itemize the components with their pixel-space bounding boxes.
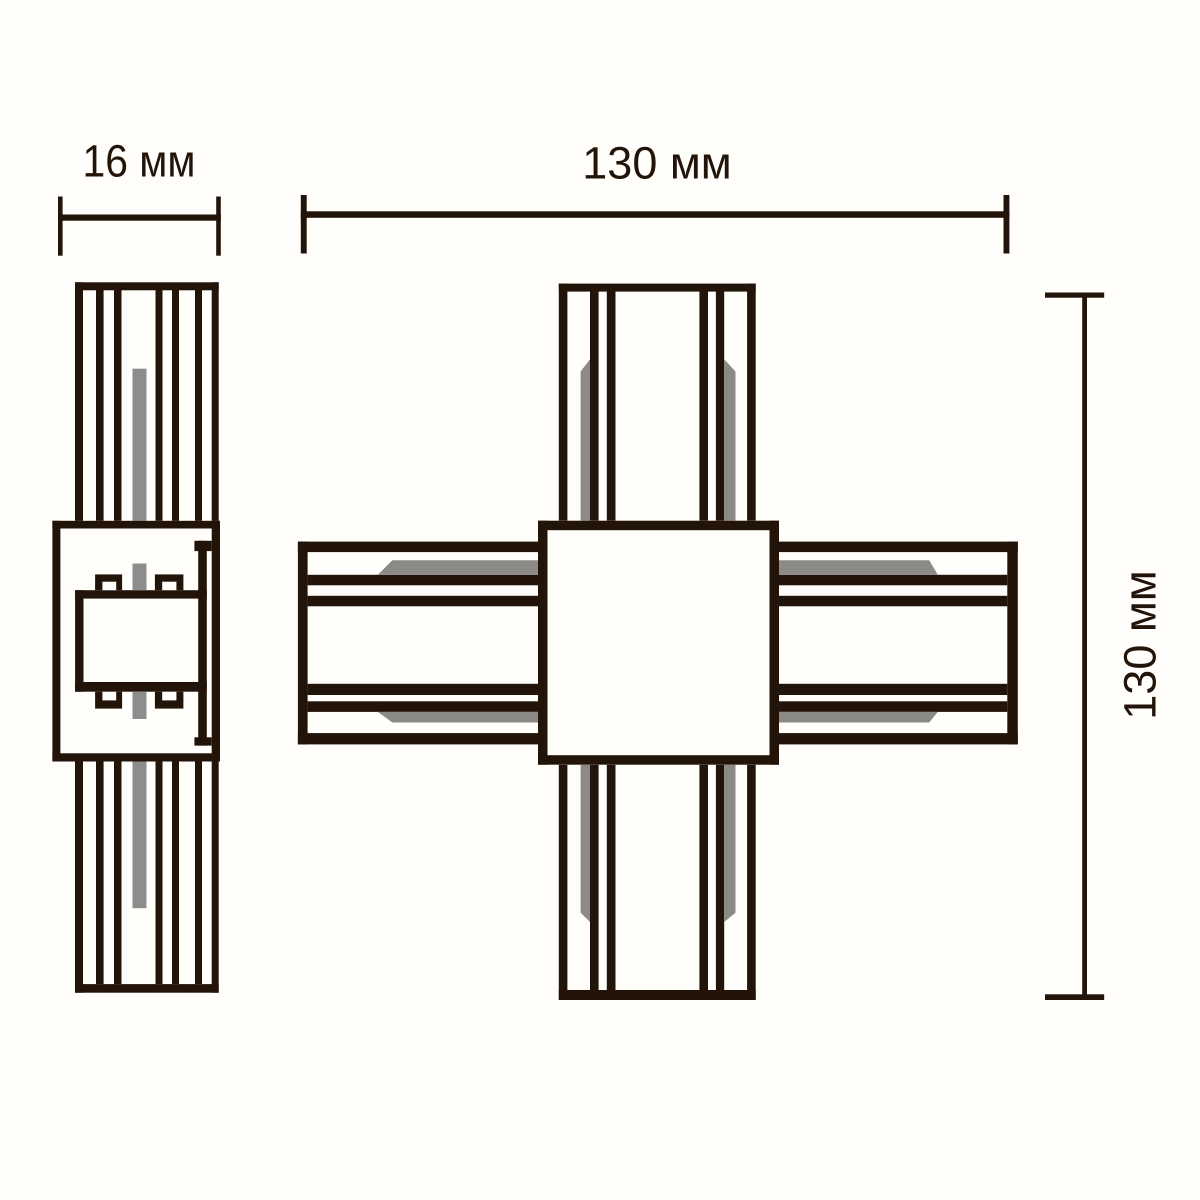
svg-text:130 мм: 130 мм (1115, 570, 1166, 719)
svg-text:16 мм: 16 мм (83, 136, 196, 187)
svg-text:130 мм: 130 мм (582, 138, 731, 189)
